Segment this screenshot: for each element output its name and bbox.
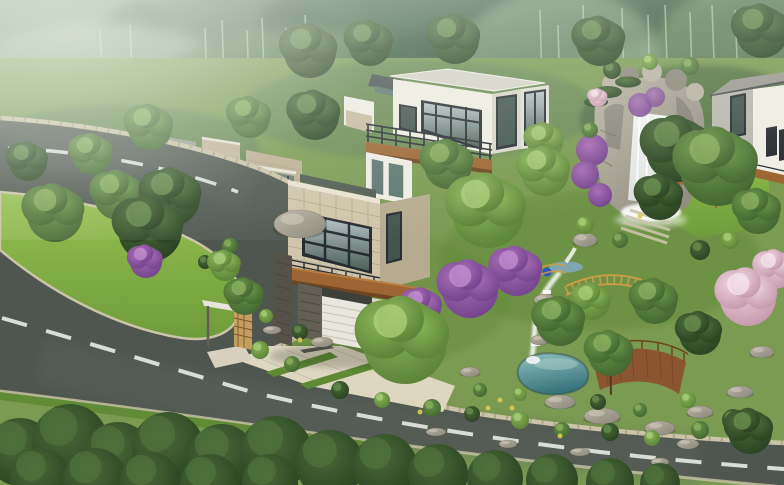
background-structure [138, 142, 158, 156]
canopy-highlight [235, 100, 251, 116]
rock [651, 458, 669, 466]
canopy-highlight [579, 286, 593, 300]
tree-canopy [154, 167, 185, 198]
boulder [621, 67, 639, 85]
tree-canopy [452, 259, 483, 290]
rock [727, 386, 753, 398]
tree-canopy [399, 308, 449, 358]
shrub [642, 54, 658, 70]
timber-pergola [668, 178, 722, 208]
treetop-highlight [69, 451, 101, 483]
rock-highlight [314, 338, 324, 342]
tree-canopy [466, 268, 500, 302]
shrub-highlight [644, 56, 651, 63]
rock-highlight [690, 408, 702, 413]
neighbor-villa [710, 72, 784, 184]
tree-canopy [102, 170, 128, 196]
side-window-frame [496, 94, 517, 150]
tree-canopy [589, 288, 611, 310]
treetop-highlight [0, 421, 27, 455]
tree-canopy [72, 135, 112, 175]
rock [677, 439, 699, 449]
tree-canopy [657, 115, 692, 150]
tree-canopy [226, 98, 254, 126]
tree [640, 115, 712, 182]
shrub [590, 394, 606, 410]
treetop-highlight [16, 451, 46, 481]
treetop-highlight [644, 465, 664, 485]
birch-trunk [305, 15, 308, 95]
tree-canopy [27, 186, 83, 242]
birch-trunk [558, 25, 561, 135]
shrub-highlight [224, 240, 231, 247]
treetop [296, 430, 364, 485]
canopy-highlight [742, 192, 760, 210]
tree-canopy [531, 298, 565, 332]
tree-canopy [570, 284, 595, 309]
shrub-highlight [261, 310, 267, 316]
curb-joints [0, 118, 784, 443]
sunlight-glow [0, 0, 500, 300]
tree-canopy [129, 195, 164, 230]
tree-canopy [348, 22, 392, 66]
flower-dot [498, 398, 503, 403]
rock-highlight [573, 449, 582, 452]
rear-upper-block [344, 69, 549, 154]
stair-bulkhead-roof [368, 74, 404, 92]
garage-recess [300, 283, 372, 350]
flower-dot [638, 214, 643, 219]
terrace-paving [222, 264, 300, 302]
tree [436, 259, 499, 318]
railing-posts [596, 341, 684, 361]
tree [127, 244, 163, 278]
rock-highlight [653, 459, 661, 462]
tree [355, 296, 450, 384]
rock [584, 408, 620, 424]
treetop-highlight [91, 425, 125, 459]
upper-pool [549, 262, 583, 273]
tree-canopy [736, 408, 760, 432]
shrub-highlight [286, 358, 293, 365]
rock-shadow [533, 299, 556, 306]
tree-trunk [610, 354, 611, 394]
driveway-grass-strip [300, 362, 380, 389]
tree [516, 146, 570, 196]
tree-canopy [286, 92, 320, 126]
picture-window-mullions [302, 217, 372, 268]
neighbor-railing [753, 164, 784, 171]
rock-shadow [263, 329, 282, 334]
tree-canopy [89, 172, 123, 206]
tree-canopy [744, 276, 778, 310]
shrub-highlight [333, 383, 341, 391]
canopy-highlight [354, 24, 372, 42]
shrub-highlight [723, 233, 731, 241]
treetop-highlight [531, 457, 557, 483]
tree-canopy [136, 244, 154, 262]
shrub-highlight [513, 413, 521, 421]
shrub-highlight [605, 63, 613, 71]
balcony-underside [366, 152, 492, 174]
topiary-mound [615, 77, 641, 88]
tree [732, 188, 782, 234]
deck-planks [604, 350, 673, 386]
tree-trunk [55, 214, 56, 230]
canopy-highlight [499, 250, 518, 269]
shrub-highlight [584, 124, 591, 131]
canopy-highlight [743, 9, 764, 30]
shrub [582, 122, 598, 138]
tree [724, 408, 774, 454]
tree-canopy [299, 90, 325, 116]
tree-canopy [293, 23, 322, 52]
front-facade [393, 79, 492, 154]
tree-canopy [596, 330, 620, 354]
shrub [374, 392, 390, 408]
picture-window-frame [302, 212, 372, 274]
side-garage-wall [372, 298, 430, 354]
shrub [644, 430, 660, 446]
blue-garden-object [543, 268, 552, 277]
treetop [353, 434, 417, 485]
tree [286, 90, 340, 140]
tree-canopy [168, 176, 202, 210]
rock-shadow [676, 443, 699, 449]
topiary-mound [584, 97, 608, 107]
waterfall-mist [615, 213, 687, 227]
canopy-highlight [654, 121, 680, 147]
neighbor-window-frame [730, 93, 746, 138]
tree-canopy [731, 6, 767, 42]
treetop-highlight [303, 433, 337, 467]
rock-shadow [686, 411, 713, 418]
tree-canopy [94, 172, 142, 220]
birch-trunks [100, 5, 738, 140]
rock-highlight [281, 214, 304, 225]
tree-canopy [230, 98, 270, 138]
shrub-highlight [693, 242, 702, 251]
treetop-highlight [248, 457, 276, 485]
tree-canopy [646, 118, 710, 182]
road-shoulder-grass [0, 392, 380, 452]
tree-canopy [584, 16, 610, 42]
tree-canopy [720, 270, 776, 326]
rock-highlight [429, 429, 438, 432]
rock [460, 367, 480, 377]
tree-canopy [513, 253, 542, 282]
rock-highlight [549, 397, 563, 403]
boulder [665, 69, 687, 91]
neighbor-front-facade [753, 85, 784, 178]
tree-canopy [527, 124, 563, 160]
treetop-highlight [414, 447, 444, 477]
wall-coping [202, 138, 240, 144]
canopy-highlight [582, 20, 601, 39]
tree-canopy [451, 21, 480, 50]
canopy-highlight [297, 94, 316, 113]
shrub-highlight [253, 343, 261, 351]
canopy-highlight [232, 281, 246, 295]
tree-canopy [130, 246, 162, 278]
tree-canopy [223, 279, 248, 304]
garage-door-panels [322, 304, 370, 344]
flower-dot [558, 434, 563, 439]
treetop-highlight [139, 416, 175, 452]
waterfall-sheet [628, 112, 674, 206]
canopy-highlight [134, 248, 147, 261]
stone-pillar [298, 283, 322, 342]
tree-canopy [584, 332, 615, 363]
neighbor-deck-band [753, 168, 784, 184]
rock [570, 448, 590, 456]
tree-canopy [638, 176, 682, 220]
flower-dot [486, 406, 491, 411]
tree-canopy [144, 249, 163, 268]
tree-canopy [112, 198, 157, 243]
canopy-highlight [449, 265, 471, 287]
flower-dot [418, 410, 423, 415]
shrub-highlight [614, 234, 621, 241]
canopy-highlight [591, 90, 598, 97]
tree [714, 267, 777, 326]
wall-joints [204, 152, 238, 199]
tree-canopy [445, 176, 495, 226]
canopy-highlight [134, 108, 152, 126]
neighbor-window-glass [732, 96, 744, 136]
center-dashes-main [2, 318, 784, 469]
shrub-highlight [693, 423, 701, 431]
shrub-highlight [725, 411, 735, 421]
pavilion-frames [266, 172, 288, 209]
canopy-highlight [437, 18, 456, 37]
shrub-highlight [646, 432, 653, 439]
forest-right-shading [0, 0, 784, 485]
tree-canopy [89, 139, 113, 163]
treetop [0, 418, 54, 485]
tree-canopy [576, 18, 624, 66]
tree [124, 104, 174, 150]
tree-canopy [724, 410, 755, 441]
wall-joints [248, 160, 300, 180]
tree-canopy [215, 250, 232, 267]
tree-canopy [128, 106, 172, 150]
balcony [366, 124, 492, 205]
terrace-lawn [146, 220, 236, 262]
rock-highlight [501, 441, 509, 444]
terrace-rails [286, 259, 380, 283]
tree-canopy [16, 141, 37, 162]
shrub-highlight [683, 59, 691, 67]
tree-canopy [523, 124, 548, 149]
tree-canopy [571, 18, 605, 52]
rock [311, 337, 333, 347]
shrub [423, 399, 441, 417]
boulder [686, 83, 704, 101]
garden-base [0, 58, 784, 485]
entry-walkway [207, 345, 252, 368]
planting-rows [194, 259, 262, 284]
shrub [601, 423, 619, 441]
wooden-deck-bridge [592, 349, 686, 394]
tree-canopy [432, 139, 458, 165]
road-sheen [10, 150, 250, 196]
shrub-highlight [635, 404, 641, 410]
neighbor-window [766, 126, 777, 157]
forest-sky-backdrop [0, 0, 784, 485]
neighbor-side-facade [712, 89, 753, 172]
side-stone-facade [380, 194, 430, 290]
tree [570, 282, 611, 320]
birch-trunk [540, 10, 543, 120]
pillar-stone-joints [300, 292, 320, 332]
tree-canopy [306, 31, 337, 62]
tree [672, 126, 758, 206]
tree-canopy [223, 254, 241, 272]
wood-band-highlight [284, 267, 430, 290]
side-facade [492, 89, 521, 154]
tree-canopy [344, 22, 375, 53]
column-joints [276, 262, 290, 336]
rock-highlight [463, 368, 472, 372]
tree-canopy [242, 283, 264, 305]
tree-canopy [227, 279, 263, 315]
shrub [473, 383, 487, 397]
right-wing-facade [521, 85, 549, 149]
tree [523, 122, 564, 160]
shrub [554, 422, 570, 438]
tree-trunk [146, 262, 147, 272]
shrub-highlight [475, 384, 481, 390]
treetop-highlight [195, 427, 229, 461]
tree-canopy [533, 122, 553, 142]
tree-canopy [641, 278, 665, 302]
wing-window-glass [526, 92, 544, 145]
treetop [586, 458, 634, 485]
tree [571, 16, 625, 66]
balcony-posts [368, 124, 490, 161]
treetop [63, 448, 127, 485]
shrub [284, 356, 300, 372]
terrace-wall [344, 96, 374, 132]
rock-shadow [651, 461, 670, 466]
canopy-highlight [690, 134, 720, 164]
shrub-highlight [515, 388, 521, 394]
parapet [288, 180, 380, 206]
tree-canopy [529, 146, 555, 172]
garden-bench [712, 184, 752, 198]
tree [21, 183, 84, 242]
bougainvillea [576, 134, 608, 166]
shrub [198, 255, 212, 269]
timber-lattice-gate [234, 310, 252, 350]
rock-highlight [680, 440, 690, 444]
pool-reflections [170, 213, 255, 221]
tree [138, 167, 201, 226]
treetop [10, 448, 70, 485]
treetop [408, 444, 468, 485]
shrub [691, 421, 709, 439]
tree-canopy [542, 128, 564, 150]
forest-background [0, 0, 784, 225]
window-wall-glass [424, 103, 479, 147]
koi-pond [518, 353, 588, 394]
tree-canopy [574, 284, 610, 320]
balcony-door-frame [399, 104, 417, 133]
rock [750, 346, 774, 358]
tree [426, 14, 480, 64]
tree-canopy [279, 26, 315, 62]
tree-canopy [521, 148, 569, 196]
rock [687, 406, 713, 418]
lattice-grid [234, 311, 252, 348]
rock-highlight [589, 410, 605, 416]
stone-column [274, 252, 292, 346]
treetop [240, 416, 312, 485]
tree [445, 172, 526, 248]
treetop [84, 422, 152, 485]
birch-trunk [583, 5, 586, 120]
driveway-entry [202, 300, 455, 412]
tree [531, 296, 585, 346]
shrub-highlight [603, 425, 611, 433]
driveway [237, 346, 455, 412]
treetop-highlight [473, 453, 501, 481]
tile-grid [288, 188, 380, 287]
canopy-highlight [532, 126, 546, 140]
tree-canopy [124, 106, 155, 137]
outer-curb [0, 118, 784, 443]
tree [675, 311, 722, 355]
pool-waterfall-streaks [210, 160, 218, 204]
tree-canopy [536, 298, 584, 346]
tree-canopy [51, 192, 85, 226]
villa-main [274, 69, 549, 355]
rock-shadows [604, 96, 694, 160]
stone-slat-path [621, 210, 670, 243]
shrub [681, 57, 699, 75]
shrub [464, 406, 480, 422]
tree [731, 3, 784, 58]
left-terrace-garden [138, 136, 305, 302]
rock-highlight [576, 235, 587, 241]
asphalt-surface [0, 118, 784, 485]
upper-cascade [566, 248, 575, 262]
lower-curb [0, 391, 784, 485]
tree-canopy [127, 246, 149, 268]
tree-canopy [592, 88, 602, 98]
neighbor-window [779, 129, 784, 161]
boulder [602, 74, 622, 94]
tree-canopy [744, 188, 768, 212]
tree-canopy [144, 170, 200, 226]
tree-canopy [444, 146, 473, 175]
canopy-highlight [527, 150, 546, 169]
garage-door [322, 296, 370, 350]
tree-canopy [652, 284, 678, 310]
tree-canopy [356, 20, 380, 44]
bulkhead-glazing [374, 86, 398, 97]
tree-canopy [145, 204, 183, 242]
rock-highlight [730, 388, 742, 393]
rock [274, 210, 326, 238]
shrub-highlight [592, 396, 599, 403]
tree [226, 96, 271, 138]
tree-canopy [752, 251, 779, 278]
canopy-highlight [100, 174, 119, 193]
tree-canopy [367, 26, 393, 52]
shrub-highlight [556, 424, 563, 431]
